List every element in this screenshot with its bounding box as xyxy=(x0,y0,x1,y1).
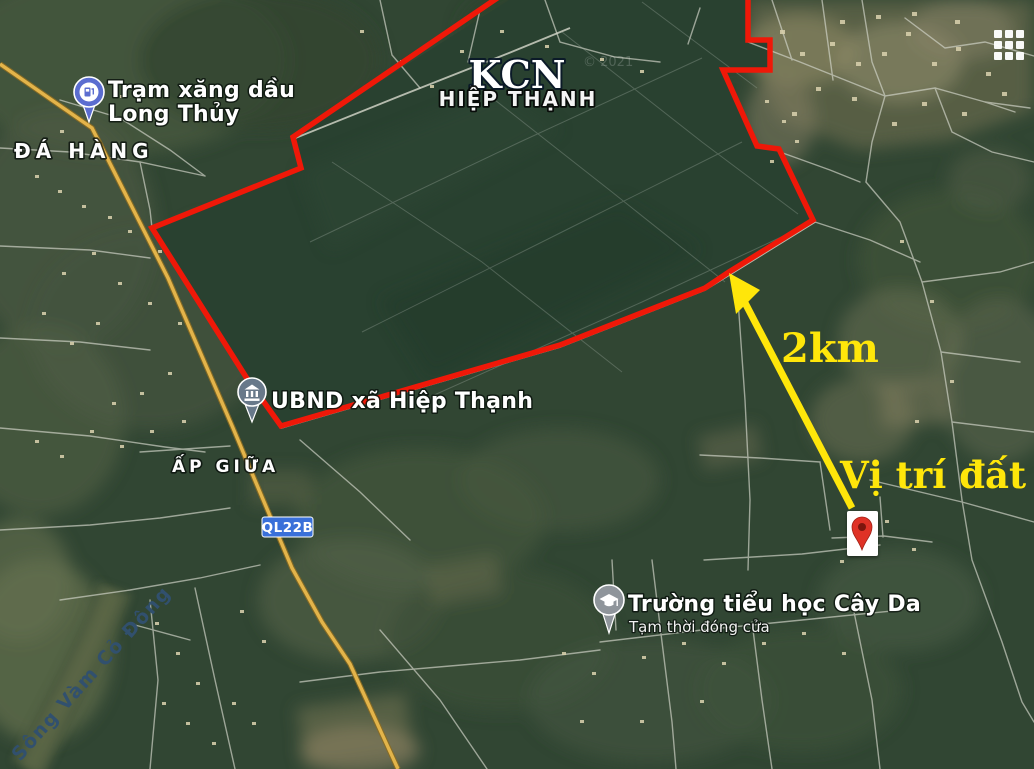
copyright-watermark: © 2021 xyxy=(583,55,633,70)
road-badge-ql22b: QL22B xyxy=(262,517,314,537)
satellite-map-viewport[interactable]: © 2021 ĐÁ HÀNG ẤP GIỮA KCN HIỆP THẠNH Sô… xyxy=(0,0,1034,769)
label-school-status: Tạm thời đóng cửa xyxy=(628,618,770,636)
fuel-pump-icon xyxy=(80,83,99,102)
land-marker[interactable] xyxy=(847,511,878,556)
grid-3x3-icon[interactable] xyxy=(994,30,1024,60)
label-distance: 2km xyxy=(781,325,879,372)
label-committee: UBND xã Hiệp Thạnh xyxy=(271,389,533,414)
label-da-hang: ĐÁ HÀNG xyxy=(14,139,154,163)
label-gas-station-line2: Long Thủy xyxy=(108,102,240,127)
label-kcn-subtitle: HIỆP THẠNH xyxy=(439,87,598,111)
label-land-position: Vị trí đất xyxy=(839,453,1026,497)
label-school: Trường tiểu học Cây Da xyxy=(628,591,921,617)
label-gas-station-line1: Trạm xăng dầu xyxy=(108,78,295,103)
label-ap-giua: ẤP GIỮA xyxy=(172,453,279,477)
road-badge-label: QL22B xyxy=(262,520,314,536)
